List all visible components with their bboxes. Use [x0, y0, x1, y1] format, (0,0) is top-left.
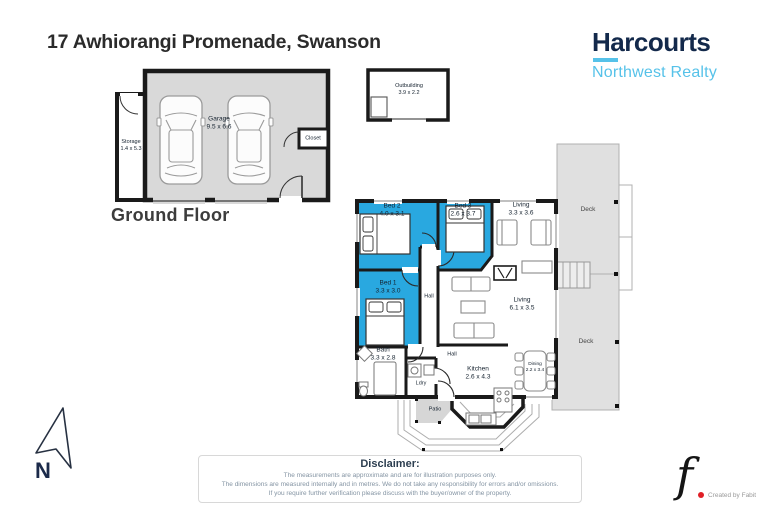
ground-floor-plan [117, 71, 328, 204]
deck-stairs [556, 262, 590, 288]
floorplan-page: 17 Awhiorangi Promenade, Swanson Harcour… [0, 0, 768, 512]
step-marker [494, 266, 516, 280]
fabit-red-dot-icon [698, 492, 704, 498]
room-label-patio: Patio [429, 406, 442, 413]
room-label-living-main: Living6.1 x 3.5 [510, 297, 535, 314]
room-label-deck-upper: Deck [581, 206, 596, 214]
room-label-closet: Closet [305, 135, 321, 142]
room-label-hall-lower: Hall [447, 351, 456, 358]
fabit-monogram: f [676, 452, 693, 498]
car-2 [225, 96, 273, 184]
disclaimer-line-1: The measurements are approximate and are… [199, 471, 581, 480]
room-label-living-top: Living3.3 x 3.6 [509, 202, 534, 219]
page-title: 17 Awhiorangi Promenade, Swanson [47, 31, 381, 54]
bed1-furniture [366, 299, 404, 345]
room-label-dining: Dining2.2 x 3.4 [526, 362, 544, 374]
room-label-bed3: Bed 32.6 x 3.7 [451, 203, 476, 220]
room-label-hall-mid: Hall [424, 293, 433, 300]
car-1 [157, 96, 205, 184]
main-floor-plan [354, 198, 559, 451]
laundry-fixtures [408, 364, 434, 377]
disclaimer-title: Disclaimer: [199, 458, 581, 471]
creator-credit: f Created by Fabit [674, 452, 764, 507]
brand-name: Harcourts [592, 29, 742, 56]
compass-north-label: N [35, 458, 51, 484]
room-label-storage: Storage1.4 x 5.3 [120, 139, 141, 153]
room-label-kitchen: Kitchen2.6 x 4.3 [466, 366, 491, 383]
disclaimer-box: Disclaimer: The measurements are approxi… [198, 455, 582, 503]
room-label-outbuilding: Outbuilding3.9 x 2.2 [395, 83, 423, 97]
room-label-deck-lower: Deck [579, 338, 594, 346]
brand-logo: Harcourts Northwest Realty [592, 29, 742, 82]
brand-subtitle: Northwest Realty [592, 64, 742, 82]
room-label-garage: Garage9.5 x 6.6 [207, 116, 232, 133]
room-label-bed2: Bed 24.0 x 3.1 [380, 203, 405, 220]
bed2-furniture [360, 214, 410, 254]
disclaimer-line-2: The dimensions are measured internally a… [199, 480, 581, 489]
ground-floor-caption: Ground Floor [111, 205, 230, 226]
brand-underline [593, 58, 618, 62]
room-label-ldry: Ldry [416, 380, 427, 387]
disclaimer-line-3: If you require further verification plea… [199, 489, 581, 498]
room-label-bath: Bath3.3 x 2.8 [371, 347, 396, 364]
fabit-credit-text: Created by Fabit [708, 492, 756, 499]
room-label-bed1: Bed 13.3 x 3.0 [376, 280, 401, 297]
